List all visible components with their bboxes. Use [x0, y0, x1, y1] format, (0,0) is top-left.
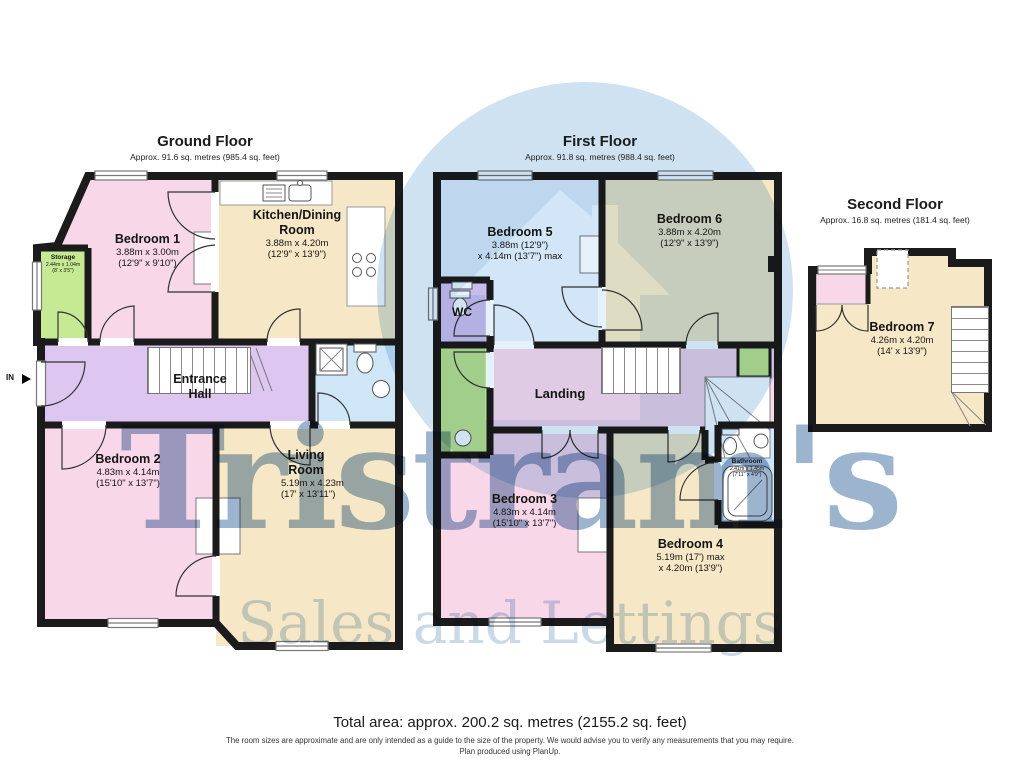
bedroom5-label: Bedroom 5 3.88m (12'9") x 4.14m (13'7") … [440, 225, 600, 262]
bedroom4-label: Bedroom 4 5.19m (17') max x 4.20m (13'9"… [618, 537, 763, 574]
total-area-text: Total area: approx. 200.2 sq. metres (21… [0, 714, 1020, 731]
wall-notch [768, 256, 780, 272]
landing-label: Landing [505, 386, 615, 401]
restricted-headroom [877, 250, 908, 288]
bedroom6-room [602, 176, 778, 345]
entrance-in-label: IN [6, 373, 14, 382]
shower-icon [316, 344, 347, 375]
basin-icon [455, 430, 471, 446]
disclaimer-text: The room sizes are approximate and are o… [0, 736, 1020, 745]
living-room-label: Living Room 5.19m x 4.23m (17' x 13'11") [281, 448, 331, 500]
wc-label: WC [441, 305, 483, 319]
produced-by-text: Plan produced using PlanUp. [0, 747, 1020, 756]
kitchen-label: Kitchen/Dining Room 3.88m x 4.20m (12'9"… [243, 208, 351, 260]
storage-label: Storage 2.44m x 1.04m (8' x 3'5") [39, 254, 87, 274]
ground-floor-title: Ground Floor Approx. 91.6 sq. metres (98… [55, 133, 355, 162]
bedroom3-label: Bedroom 3 4.83m x 4.14m (15'10" x 13'7") [447, 492, 602, 529]
bedroom2-label: Bedroom 2 4.83m x 4.14m (15'10" x 13'7") [58, 452, 198, 489]
basin-icon [373, 381, 390, 398]
entrance-arrow-icon [22, 374, 31, 384]
bathroom-label: Bathroom 2.41m x 1.45m (7'11" x 4'9") [718, 458, 776, 478]
floorplan-page: Tristram's Sales and Lettings Ground Flo… [0, 0, 1020, 765]
bedroom6-label: Bedroom 6 3.88m x 4.20m (12'9" x 13'9") [617, 212, 762, 249]
bedroom1-label: Bedroom 1 3.88m x 3.00m (12'9" x 9'10") [95, 232, 200, 269]
first-floor-title: First Floor Approx. 91.8 sq. metres (988… [450, 133, 750, 162]
cupboard [738, 346, 770, 377]
second-floor-title: Second Floor Approx. 16.8 sq. metres (18… [790, 196, 1000, 225]
entrance-hall-label: Entrance Hall [168, 372, 232, 402]
bedroom7-label: Bedroom 7 4.26m x 4.20m (14' x 13'9") [832, 320, 972, 357]
closet [816, 274, 868, 304]
